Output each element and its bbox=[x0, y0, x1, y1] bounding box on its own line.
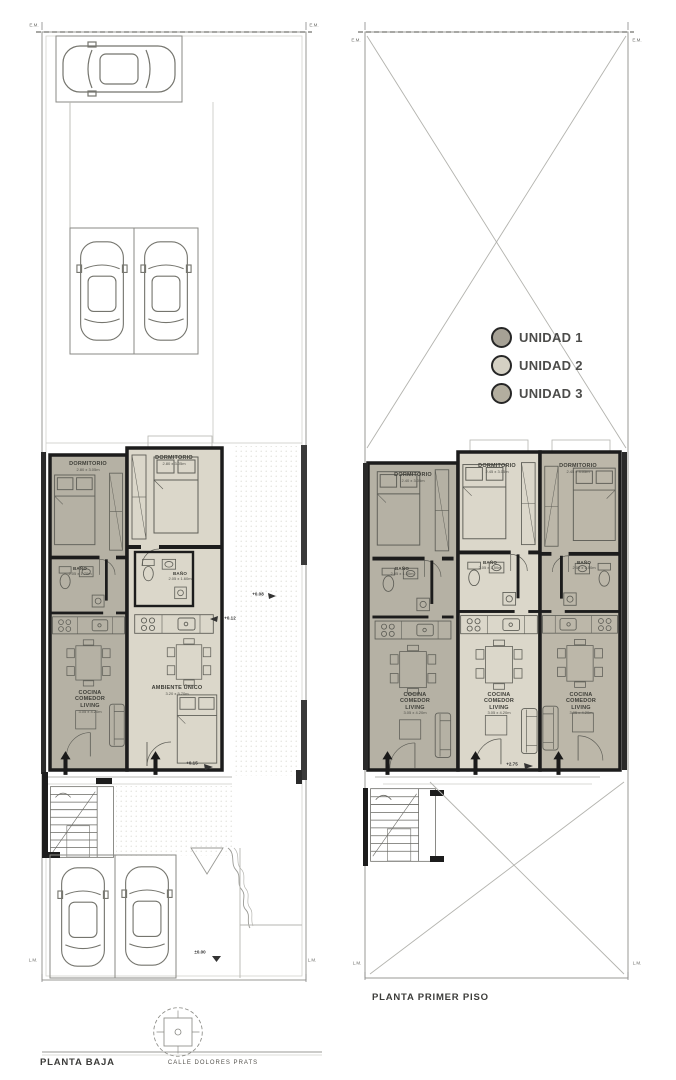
marker-em-ground-left: E.M. bbox=[29, 23, 38, 28]
unit-1-first bbox=[368, 463, 458, 770]
legend-item-unidad-2: UNIDAD 2 bbox=[491, 355, 583, 376]
ground-floor-plan bbox=[36, 22, 322, 1056]
room-label-living-f3: COCINA COMEDOR LIVING bbox=[566, 692, 596, 711]
void-cross-bottom bbox=[370, 782, 624, 974]
car-top-view-icon bbox=[77, 242, 127, 340]
parking-street bbox=[50, 855, 176, 978]
room-dim-living-f3: 3.05 x 4.20m bbox=[569, 711, 592, 715]
ground-floor-title: PLANTA BAJA bbox=[40, 1057, 115, 1068]
marker-em-ground-right: E.M. bbox=[309, 23, 318, 28]
room-dim-living-f1: 3.05 x 4.20m bbox=[403, 711, 426, 715]
room-label-living-f2: COCINA COMEDOR LIVING bbox=[484, 692, 514, 711]
room-dim-bath-f3: 2.05 x 1.50m bbox=[572, 566, 595, 570]
unit-2-ground bbox=[127, 448, 222, 770]
level-patio-ground: +0.08 bbox=[252, 592, 263, 597]
room-dim-bedroom-f1: 2.40 x 3.05m bbox=[401, 479, 424, 483]
room-dim-living-g1: 3.05 x 4.20m bbox=[78, 710, 101, 714]
first-floor-title: PLANTA PRIMER PISO bbox=[372, 992, 489, 1003]
room-dim-bedroom-g1: 2.80 x 3.05m bbox=[76, 468, 99, 472]
level-street-ground: ±0.00 bbox=[194, 950, 205, 955]
unidad-1-color-dot bbox=[491, 327, 512, 348]
parking-middle bbox=[70, 228, 198, 354]
room-label-living-f1: COCINA COMEDOR LIVING bbox=[400, 692, 430, 711]
room-dim-bath-f1: 2.05 x 1.50m bbox=[390, 572, 413, 576]
car-top-view-icon bbox=[141, 242, 191, 340]
street-name-label: CALLE DOLORES PRATS bbox=[168, 1060, 258, 1066]
room-dim-living-f2: 3.05 x 4.20m bbox=[487, 711, 510, 715]
level-entry-ground: +0.15 bbox=[186, 761, 197, 766]
unidad-2-color-dot bbox=[491, 355, 512, 376]
unidad-3-color-dot bbox=[491, 383, 512, 404]
level-entry-first: +2.75 bbox=[506, 762, 517, 767]
marker-lm-ground-right: L.M. bbox=[308, 958, 317, 963]
stairs-first bbox=[363, 788, 444, 866]
room-dim-bath-g2: 2.05 x 1.60m bbox=[168, 577, 191, 581]
unit-3-first bbox=[540, 452, 620, 770]
room-dim-living-g2: 3.20 x 5.70m bbox=[165, 692, 188, 696]
car-top-view-icon bbox=[122, 867, 172, 965]
marker-lm-ground-left: L.M. bbox=[29, 958, 38, 963]
unit-legend: UNIDAD 1 UNIDAD 2 UNIDAD 3 bbox=[491, 327, 583, 411]
room-dim-bedroom-f3: 2.45 x 3.05m bbox=[566, 470, 589, 474]
room-label-living-g1: COCINA COMEDOR LIVING bbox=[75, 690, 105, 709]
hedge-line bbox=[228, 848, 250, 928]
level-step-ground: +0.12 bbox=[224, 616, 235, 621]
room-dim-bedroom-f2: 2.45 x 3.05m bbox=[485, 470, 508, 474]
car-top-view-icon bbox=[58, 868, 108, 966]
marker-lm-first-right: L.M. bbox=[633, 961, 642, 966]
room-dim-bath-f2: 2.05 x 1.50m bbox=[478, 566, 501, 570]
room-dim-bath-g1: 2.05 x 1.70m bbox=[68, 572, 91, 576]
unit-1-ground bbox=[50, 455, 127, 770]
unidad-1-label: UNIDAD 1 bbox=[519, 330, 583, 345]
unit-2-first bbox=[458, 452, 540, 770]
legend-item-unidad-1: UNIDAD 1 bbox=[491, 327, 583, 348]
room-dim-bedroom-g2: 2.80 x 3.05m bbox=[162, 462, 185, 466]
floor-plan-sheet: UNIDAD 1 UNIDAD 2 UNIDAD 3 DORMITORIO 2.… bbox=[0, 0, 676, 1080]
marker-em-first-left: E.M. bbox=[351, 38, 360, 43]
unidad-3-label: UNIDAD 3 bbox=[519, 386, 583, 401]
marker-em-first-right: E.M. bbox=[632, 38, 641, 43]
marker-lm-first-left: L.M. bbox=[353, 961, 362, 966]
floor-plan-drawing bbox=[0, 0, 676, 1080]
carport-top bbox=[56, 36, 182, 102]
stairs-ground bbox=[42, 772, 114, 858]
unidad-2-label: UNIDAD 2 bbox=[519, 358, 583, 373]
legend-item-unidad-3: UNIDAD 3 bbox=[491, 383, 583, 404]
tree-compass-icon bbox=[154, 1008, 203, 1057]
first-floor-plan bbox=[358, 22, 634, 980]
stairs-icon bbox=[50, 787, 113, 858]
stairs-icon bbox=[371, 789, 436, 862]
